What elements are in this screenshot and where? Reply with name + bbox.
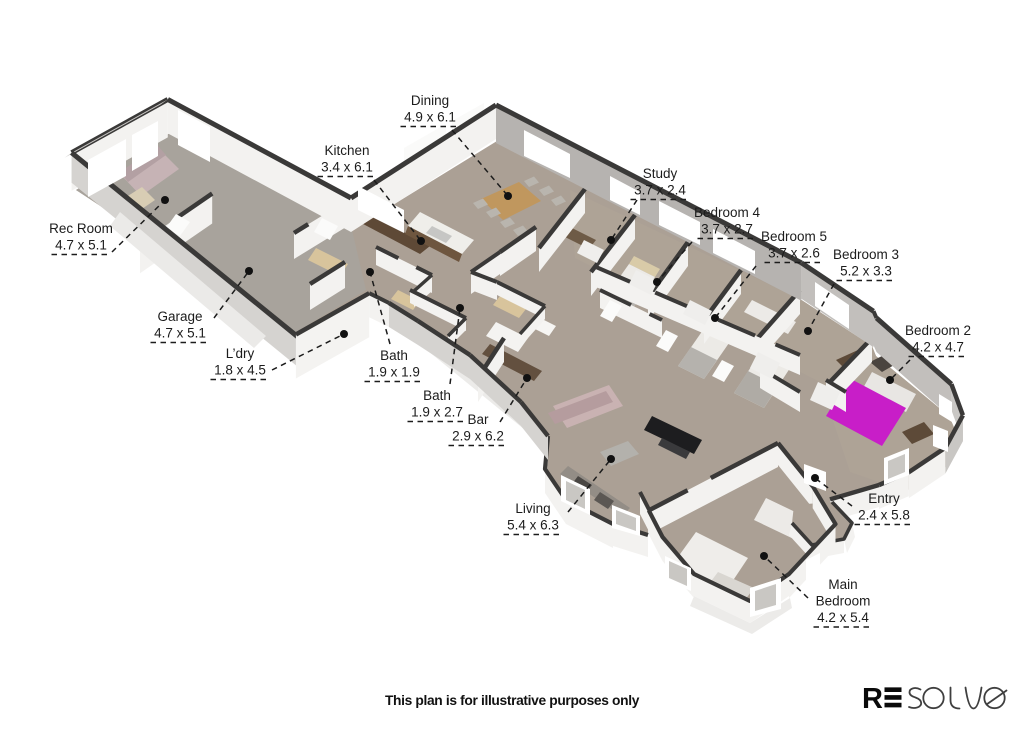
svg-text:Bedroom 4: Bedroom 4 [694, 205, 761, 220]
svg-text:4.9 x 6.1: 4.9 x 6.1 [404, 110, 456, 125]
svg-text:5.4 x 6.3: 5.4 x 6.3 [507, 518, 559, 533]
svg-text:4.2 x 4.7: 4.2 x 4.7 [912, 340, 964, 355]
svg-text:Bedroom: Bedroom [816, 594, 871, 609]
svg-text:This plan is for illustrative: This plan is for illustrative purposes o… [385, 693, 640, 708]
svg-text:3.7 x 2.4: 3.7 x 2.4 [634, 183, 686, 198]
svg-text:3.7 x 2.6: 3.7 x 2.6 [768, 246, 820, 261]
svg-text:Garage: Garage [157, 309, 202, 324]
svg-text:1.8 x 4.5: 1.8 x 4.5 [214, 363, 266, 378]
svg-text:Kitchen: Kitchen [324, 143, 369, 158]
svg-text:Dining: Dining [411, 93, 449, 108]
svg-text:1.9 x 1.9: 1.9 x 1.9 [368, 365, 420, 380]
svg-text:4.2 x 5.4: 4.2 x 5.4 [817, 610, 869, 625]
svg-text:Bedroom 2: Bedroom 2 [905, 323, 971, 338]
svg-text:L’dry: L’dry [226, 346, 255, 361]
svg-text:Bar: Bar [467, 412, 489, 427]
svg-text:1.9 x 2.7: 1.9 x 2.7 [411, 405, 463, 420]
svg-text:Bedroom 3: Bedroom 3 [833, 247, 899, 262]
svg-text:Bath: Bath [423, 388, 451, 403]
svg-text:Main: Main [828, 577, 857, 592]
svg-text:Rec Room: Rec Room [49, 221, 113, 236]
svg-text:Living: Living [515, 501, 550, 516]
svg-text:Study: Study [643, 166, 678, 181]
svg-text:2.9 x 6.2: 2.9 x 6.2 [452, 429, 504, 444]
svg-text:Entry: Entry [868, 491, 900, 506]
svg-text:2.4 x 5.8: 2.4 x 5.8 [858, 508, 910, 523]
svg-text:4.7 x 5.1: 4.7 x 5.1 [55, 238, 107, 253]
svg-text:Bedroom 5: Bedroom 5 [761, 229, 827, 244]
svg-text:4.7 x 5.1: 4.7 x 5.1 [154, 326, 206, 341]
svg-text:R: R [862, 683, 883, 715]
svg-text:Bath: Bath [380, 348, 408, 363]
svg-text:3.7 x 2.7: 3.7 x 2.7 [701, 222, 753, 237]
svg-text:3.4 x 6.1: 3.4 x 6.1 [321, 160, 373, 175]
svg-text:5.2 x 3.3: 5.2 x 3.3 [840, 264, 892, 279]
